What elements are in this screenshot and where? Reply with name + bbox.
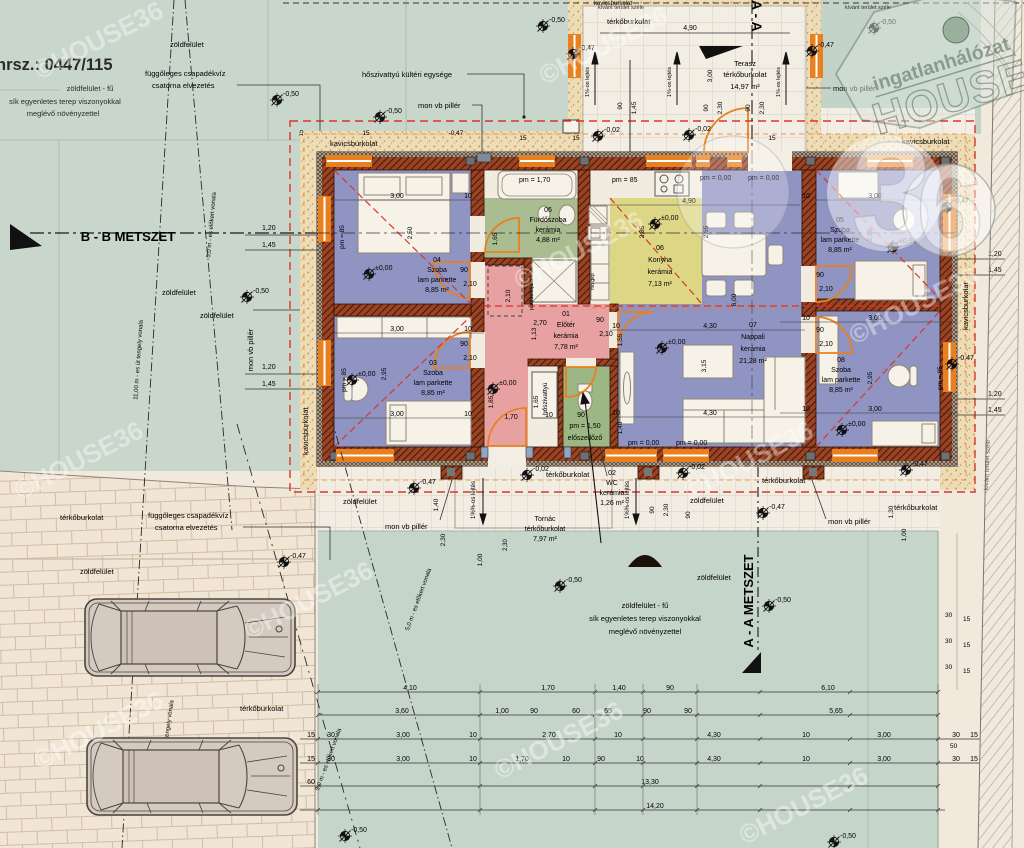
svg-text:90: 90 — [460, 341, 468, 348]
svg-text:-0,50: -0,50 — [283, 91, 299, 98]
svg-text:1,85: 1,85 — [488, 395, 495, 408]
svg-text:Konyha: Konyha — [648, 257, 672, 264]
svg-text:30: 30 — [327, 732, 335, 739]
svg-text:Nappali: Nappali — [741, 334, 765, 341]
svg-text:10: 10 — [612, 323, 620, 330]
svg-text:-0,50: -0,50 — [566, 577, 582, 584]
svg-text:Szoba: Szoba — [423, 370, 443, 377]
svg-text:2,50: 2,50 — [407, 226, 414, 239]
svg-text:50: 50 — [950, 743, 958, 750]
svg-text:lam parkette: lam parkette — [418, 277, 457, 284]
svg-text:sík egyenletes terep viszonyok: sík egyenletes terep viszonyokkal — [9, 97, 121, 106]
svg-text:csatorna elvezetés: csatorna elvezetés — [152, 81, 215, 90]
svg-text:10: 10 — [614, 732, 622, 739]
svg-text:2,10: 2,10 — [463, 355, 477, 362]
svg-text:térkőburkolat: térkőburkolat — [525, 526, 566, 533]
svg-text:07: 07 — [749, 322, 757, 329]
svg-text:2,95: 2,95 — [867, 371, 874, 384]
svg-text:90: 90 — [596, 317, 604, 324]
svg-text:Terasz: Terasz — [734, 59, 756, 68]
svg-text:2,30: 2,30 — [440, 533, 447, 546]
svg-text:15: 15 — [970, 732, 978, 739]
svg-text:14,97 m²: 14,97 m² — [730, 82, 760, 91]
svg-text:10: 10 — [562, 756, 570, 763]
svg-text:4,30: 4,30 — [703, 323, 717, 330]
svg-text:sík egyenletes terep viszonyok: sík egyenletes terep viszonyokkal — [589, 614, 701, 623]
svg-text:lam parkette: lam parkette — [822, 377, 861, 384]
svg-text:4,30: 4,30 — [703, 410, 717, 417]
svg-text:15: 15 — [307, 756, 315, 763]
svg-text:-0,47: -0,47 — [420, 479, 436, 486]
svg-text:1,00: 1,00 — [495, 708, 509, 715]
svg-text:90: 90 — [816, 327, 824, 334]
svg-text:90: 90 — [745, 104, 752, 112]
svg-text:04: 04 — [433, 257, 441, 264]
svg-text:zöldfelület: zöldfelület — [162, 288, 197, 297]
svg-text:Előtér: Előtér — [557, 322, 576, 329]
svg-text:10: 10 — [802, 193, 810, 200]
svg-text:90: 90 — [577, 412, 585, 419]
svg-text:2,30: 2,30 — [759, 101, 766, 114]
svg-text:kerámia: kerámia — [600, 490, 625, 497]
svg-text:térkőburkolat: térkőburkolat — [546, 470, 590, 479]
svg-text:térkőburkolat: térkőburkolat — [240, 704, 284, 713]
svg-text:4,88 m²: 4,88 m² — [536, 237, 560, 244]
svg-text:1,13: 1,13 — [531, 327, 538, 340]
svg-text:pm = 85: pm = 85 — [341, 368, 348, 392]
svg-text:függőleges csapadékvíz: függőleges csapadékvíz — [148, 511, 229, 520]
svg-text:1%-os lejtés: 1%-os lejtés — [776, 67, 782, 97]
svg-text:90: 90 — [703, 104, 710, 112]
svg-text:pm = 85: pm = 85 — [612, 177, 638, 184]
svg-text:mon vb pillér: mon vb pillér — [828, 517, 871, 526]
svg-text:10: 10 — [612, 410, 620, 417]
svg-text:-0,02: -0,02 — [695, 126, 711, 133]
svg-text:1,45: 1,45 — [262, 381, 276, 388]
svg-text:3,00: 3,00 — [707, 69, 714, 82]
svg-text:2,30: 2,30 — [663, 503, 670, 516]
svg-text:A - A: A - A — [749, 0, 765, 32]
svg-text:10: 10 — [464, 326, 472, 333]
svg-text:3,00: 3,00 — [877, 732, 891, 739]
svg-text:10: 10 — [802, 732, 810, 739]
svg-text:térkőburkolat: térkőburkolat — [762, 476, 806, 485]
svg-text:térkőburkolat: térkőburkolat — [60, 513, 104, 522]
svg-text:10: 10 — [802, 756, 810, 763]
svg-text:1,26 m²: 1,26 m² — [600, 500, 624, 507]
svg-text:3,00: 3,00 — [390, 411, 404, 418]
svg-text:3,00: 3,00 — [877, 756, 891, 763]
svg-text:-0,47: -0,47 — [290, 553, 306, 560]
svg-text:1,30: 1,30 — [888, 505, 895, 518]
svg-text:zöldfelület: zöldfelület — [697, 573, 732, 582]
svg-text:15: 15 — [970, 756, 978, 763]
svg-text:-0,47: -0,47 — [769, 504, 785, 511]
svg-text:mon vb pillér: mon vb pillér — [418, 101, 461, 110]
svg-text:3,60: 3,60 — [395, 708, 409, 715]
svg-text:1%-os lejtés: 1%-os lejtés — [585, 67, 591, 97]
svg-text:6,10: 6,10 — [821, 685, 835, 692]
svg-text:30: 30 — [327, 756, 335, 763]
svg-text:meglévő növényzettel: meglévő növényzettel — [609, 627, 682, 636]
svg-text:kerámia: kerámia — [554, 333, 579, 340]
svg-text:±0,00: ±0,00 — [375, 265, 393, 272]
svg-text:kavicsburkolat: kavicsburkolat — [330, 139, 378, 148]
svg-text:2,10: 2,10 — [505, 289, 512, 302]
svg-text:2,10: 2,10 — [819, 341, 833, 348]
svg-text:3,00: 3,00 — [390, 326, 404, 333]
svg-text:2,10: 2,10 — [599, 331, 613, 338]
svg-text:10: 10 — [545, 412, 553, 419]
svg-text:függőleges csapadékvíz: függőleges csapadékvíz — [145, 69, 226, 78]
svg-text:térkőburkolat: térkőburkolat — [894, 503, 938, 512]
svg-text:1,20: 1,20 — [262, 225, 276, 232]
svg-text:6: 6 — [916, 140, 984, 276]
svg-text:30: 30 — [945, 638, 953, 645]
svg-text:WC: WC — [606, 480, 618, 487]
svg-text:3,00: 3,00 — [396, 756, 410, 763]
svg-text:15: 15 — [519, 135, 527, 142]
svg-text:Tornác: Tornác — [534, 516, 556, 523]
svg-text:Szoba: Szoba — [427, 267, 447, 274]
svg-text:06: 06 — [656, 245, 664, 252]
svg-text:pm = 85: pm = 85 — [937, 366, 944, 390]
svg-text:3,15: 3,15 — [701, 359, 708, 372]
svg-text:1,70: 1,70 — [504, 414, 518, 421]
svg-text:B - B METSZET: B - B METSZET — [81, 229, 176, 244]
svg-text:1,45: 1,45 — [262, 242, 276, 249]
svg-text:4,10: 4,10 — [403, 685, 417, 692]
svg-text:3,00: 3,00 — [396, 732, 410, 739]
svg-text:10: 10 — [469, 732, 477, 739]
svg-text:pm = 0,00: pm = 0,00 — [628, 440, 659, 447]
svg-text:30: 30 — [952, 756, 960, 763]
svg-text:kerámia: kerámia — [648, 269, 673, 276]
svg-text:zöldfelület - fű: zöldfelület - fű — [622, 601, 669, 610]
svg-text:10: 10 — [464, 193, 472, 200]
svg-text:30: 30 — [945, 664, 953, 671]
svg-text:6,00: 6,00 — [731, 293, 738, 306]
svg-text:térkőburkolat: térkőburkolat — [723, 70, 767, 79]
svg-text:-0,50: -0,50 — [253, 288, 269, 295]
svg-text:90: 90 — [460, 267, 468, 274]
svg-text:3,00: 3,00 — [868, 406, 882, 413]
svg-text:90: 90 — [530, 708, 538, 715]
svg-text:15: 15 — [963, 616, 971, 623]
svg-text:lam parkette: lam parkette — [414, 380, 453, 387]
svg-text:03: 03 — [429, 360, 437, 367]
svg-text:4,90: 4,90 — [683, 25, 697, 32]
svg-text:10: 10 — [802, 315, 810, 322]
svg-text:1,40: 1,40 — [617, 421, 624, 434]
svg-text:±0,00: ±0,00 — [661, 215, 679, 222]
svg-text:2,10: 2,10 — [819, 286, 833, 293]
svg-text:1,55: 1,55 — [617, 333, 624, 346]
svg-text:15: 15 — [299, 129, 305, 136]
svg-text:mon vb pillér: mon vb pillér — [385, 522, 428, 531]
svg-text:2,10: 2,10 — [463, 281, 477, 288]
svg-text:8,85 m²: 8,85 m² — [421, 390, 445, 397]
svg-text:mon vb pillér: mon vb pillér — [246, 328, 255, 371]
svg-text:-0,02: -0,02 — [604, 127, 620, 134]
svg-text:7,97 m²: 7,97 m² — [533, 536, 557, 543]
svg-text:90: 90 — [597, 756, 605, 763]
svg-text:15: 15 — [963, 642, 971, 649]
svg-text:pm = 85: pm = 85 — [339, 225, 346, 249]
svg-text:1%%-os lejtés: 1%%-os lejtés — [625, 481, 631, 519]
svg-text:15: 15 — [362, 130, 370, 137]
svg-text:1,00: 1,00 — [477, 553, 484, 566]
svg-text:hőszivattyú: hőszivattyú — [542, 382, 549, 415]
svg-text:2,30: 2,30 — [717, 101, 724, 114]
svg-text:8,85 m²: 8,85 m² — [829, 387, 853, 394]
svg-text:±0,00: ±0,00 — [848, 421, 866, 428]
svg-text:kerámia: kerámia — [536, 227, 561, 234]
svg-text:14,20: 14,20 — [646, 803, 664, 810]
svg-text:előszellőző: előszellőző — [568, 435, 603, 442]
svg-text:2,95: 2,95 — [381, 367, 388, 380]
svg-text:1,00: 1,00 — [901, 528, 908, 541]
svg-text:zöldfelület: zöldfelület — [80, 567, 115, 576]
svg-text:15: 15 — [963, 668, 971, 675]
svg-text:-0,47: -0,47 — [912, 461, 928, 468]
svg-text:Szoba: Szoba — [831, 367, 851, 374]
svg-text:A - A METSZET: A - A METSZET — [741, 554, 756, 647]
svg-text:1%-os lejtés: 1%-os lejtés — [667, 67, 673, 97]
svg-text:15: 15 — [572, 135, 580, 142]
svg-text:90: 90 — [649, 506, 656, 514]
svg-text:8,85 m²: 8,85 m² — [425, 287, 449, 294]
svg-text:pm = 1,50: pm = 1,50 — [569, 423, 600, 430]
svg-text:±0,00: ±0,00 — [668, 339, 686, 346]
svg-text:7,13 m²: 7,13 m² — [648, 281, 672, 288]
svg-text:90: 90 — [617, 102, 624, 110]
svg-text:90: 90 — [685, 511, 692, 519]
svg-text:30: 30 — [945, 612, 953, 619]
svg-text:-0,50: -0,50 — [775, 597, 791, 604]
svg-text:2,30: 2,30 — [503, 539, 509, 551]
svg-text:pm = 0,00: pm = 0,00 — [676, 440, 707, 447]
svg-text:8,85 m²: 8,85 m² — [828, 247, 852, 254]
svg-text:-0,50: -0,50 — [351, 827, 367, 834]
svg-text:4,30: 4,30 — [707, 756, 721, 763]
svg-text:2,70: 2,70 — [533, 320, 547, 327]
svg-text:10: 10 — [469, 756, 477, 763]
svg-text:mo.gép: mo.gép — [590, 273, 596, 290]
svg-text:pm = 1,70: pm = 1,70 — [519, 177, 550, 184]
svg-text:±0,00: ±0,00 — [499, 380, 517, 387]
svg-text:30: 30 — [952, 732, 960, 739]
svg-text:90: 90 — [684, 708, 692, 715]
svg-text:7,78 m²: 7,78 m² — [554, 344, 578, 351]
svg-text:60: 60 — [307, 779, 315, 786]
svg-text:01: 01 — [562, 311, 570, 318]
svg-text:hőszivattyú kültéri egysége: hőszivattyú kültéri egysége — [362, 70, 452, 79]
svg-text:15: 15 — [307, 732, 315, 739]
svg-text:90: 90 — [816, 272, 824, 279]
svg-text:-0,50: -0,50 — [840, 833, 856, 840]
svg-text:1,20: 1,20 — [262, 364, 276, 371]
svg-text:02: 02 — [608, 470, 616, 477]
svg-text:90: 90 — [666, 685, 674, 692]
svg-text:1,45: 1,45 — [631, 101, 638, 114]
svg-text:zöldfelület - fű: zöldfelület - fű — [67, 84, 114, 93]
svg-text:-0,47: -0,47 — [958, 355, 974, 362]
svg-text:1,40: 1,40 — [433, 498, 440, 511]
svg-text:-0,47: -0,47 — [449, 130, 464, 137]
svg-text:1,40: 1,40 — [612, 685, 626, 692]
svg-text:1,70: 1,70 — [541, 685, 555, 692]
svg-text:06: 06 — [544, 207, 552, 214]
svg-text:4,30: 4,30 — [707, 732, 721, 739]
svg-text:21,28 m²: 21,28 m² — [739, 358, 767, 365]
svg-text:zöldfelület: zöldfelület — [343, 497, 378, 506]
svg-text:1,65: 1,65 — [533, 395, 540, 408]
svg-text:±0,00: ±0,00 — [358, 371, 376, 378]
svg-text:08: 08 — [837, 357, 845, 364]
svg-text:kavicsburkolat: kavicsburkolat — [301, 407, 310, 455]
svg-text:zöldfelület: zöldfelület — [170, 40, 205, 49]
svg-text:csatorna elvezetés: csatorna elvezetés — [155, 523, 218, 532]
svg-text:10: 10 — [802, 406, 810, 413]
svg-text:-0,50: -0,50 — [549, 17, 565, 24]
svg-text:1%%-os lejtés: 1%%-os lejtés — [471, 481, 477, 519]
svg-text:5,65: 5,65 — [829, 708, 843, 715]
svg-text:meglévő növényzettel: meglévő növényzettel — [27, 109, 100, 118]
svg-text:kerámia: kerámia — [741, 346, 766, 353]
svg-text:15: 15 — [768, 135, 776, 142]
svg-text:-0,50: -0,50 — [386, 108, 402, 115]
svg-text:1,65: 1,65 — [492, 232, 499, 245]
svg-text:3,00: 3,00 — [390, 193, 404, 200]
svg-text:zöldfelület: zöldfelület — [200, 311, 235, 320]
svg-text:-0,47: -0,47 — [818, 42, 834, 49]
svg-text:Fürdőszoba: Fürdőszoba — [530, 217, 567, 224]
svg-text:10: 10 — [464, 411, 472, 418]
